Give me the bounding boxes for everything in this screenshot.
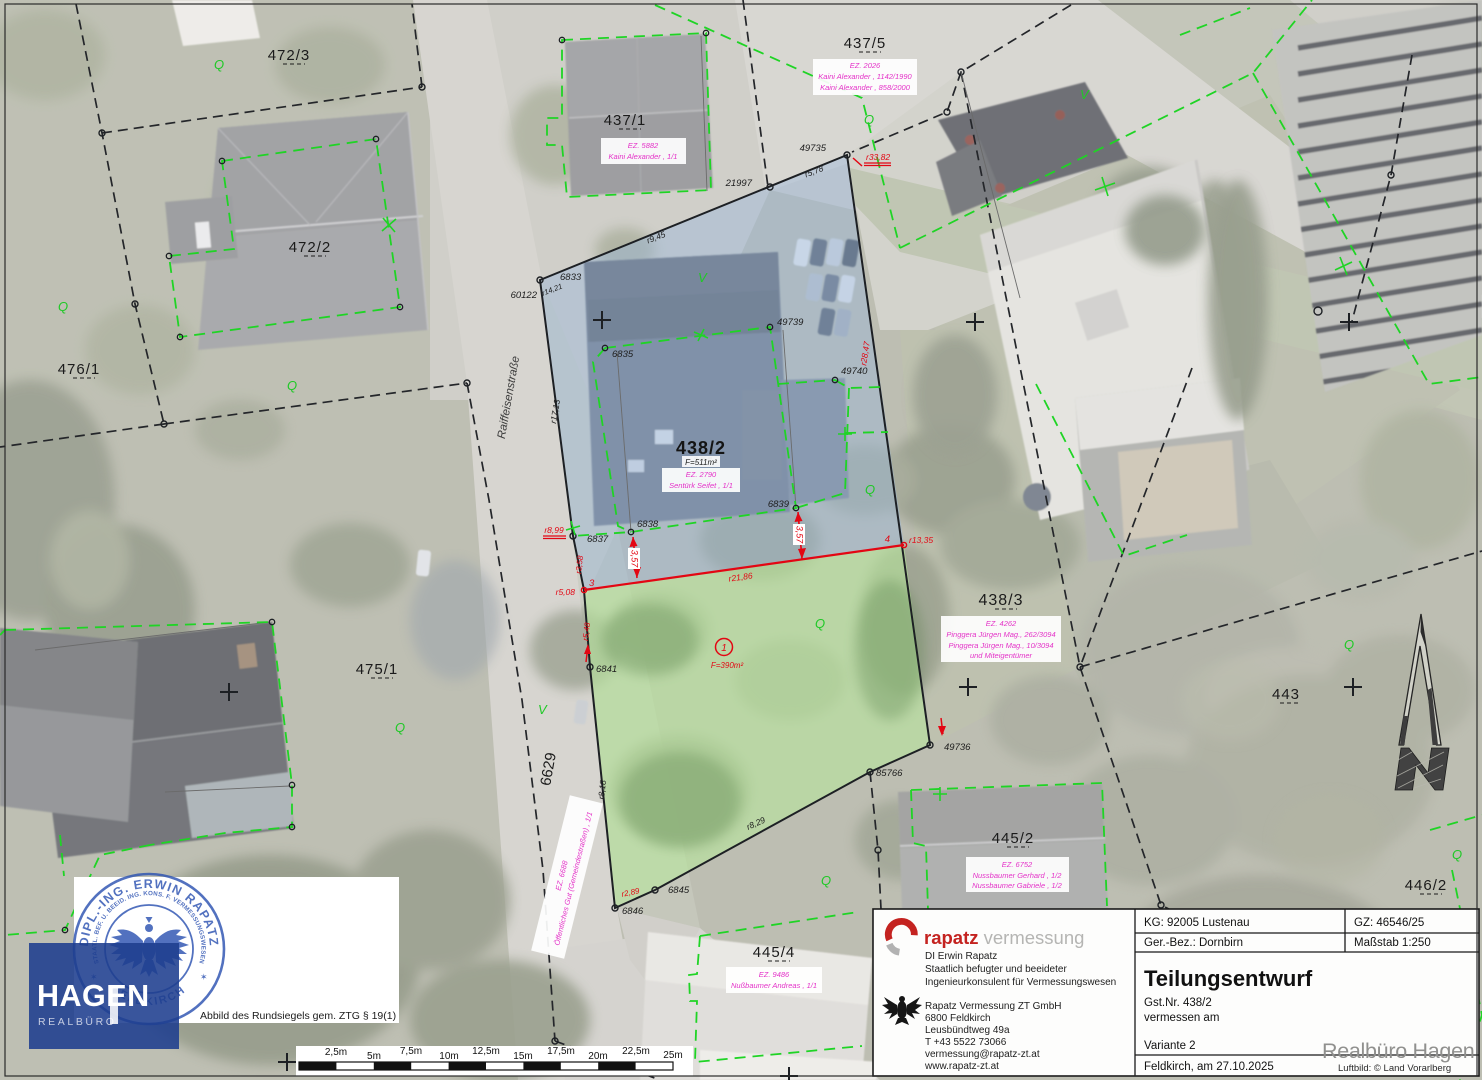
svg-text:446/2: 446/2 — [1405, 877, 1448, 894]
svg-text:KG: 92005 Lustenau: KG: 92005 Lustenau — [1144, 917, 1250, 929]
svg-text:Q: Q — [287, 378, 297, 393]
svg-text:438/2: 438/2 — [676, 438, 726, 458]
svg-text:Ingenieurkonsulent für Vermess: Ingenieurkonsulent für Vermessungswesen — [925, 977, 1116, 988]
svg-text:V: V — [1080, 87, 1090, 102]
svg-text:1: 1 — [721, 643, 727, 654]
svg-text:Abbild des Rundsiegels gem. ZT: Abbild des Rundsiegels gem. ZTG § 19(1) — [200, 1010, 396, 1022]
svg-text:rapatz vermessung: rapatz vermessung — [924, 927, 1084, 948]
svg-text:Leusbündtweg 49a: Leusbündtweg 49a — [925, 1025, 1010, 1036]
svg-text:49736: 49736 — [944, 742, 971, 753]
svg-text:EZ. 2026: EZ. 2026 — [850, 61, 881, 70]
svg-text:Teilungsentwurf: Teilungsentwurf — [1144, 966, 1313, 991]
svg-text:10m: 10m — [439, 1051, 458, 1062]
svg-text:12,5m: 12,5m — [472, 1046, 500, 1057]
svg-text:15m: 15m — [513, 1051, 532, 1062]
svg-text:Kaini Alexander , 1142/1990: Kaini Alexander , 1142/1990 — [818, 72, 912, 81]
svg-text:EZ. 6752: EZ. 6752 — [1002, 860, 1033, 869]
svg-text:Pinggera Jürgen Mag., 262/3094: Pinggera Jürgen Mag., 262/3094 — [946, 630, 1055, 639]
svg-text:476/1: 476/1 — [58, 361, 101, 378]
svg-text:V: V — [538, 702, 548, 717]
svg-text:22,5m: 22,5m — [622, 1046, 650, 1057]
svg-text:Nussbaumer Gabriele , 1/2: Nussbaumer Gabriele , 1/2 — [972, 881, 1062, 890]
svg-text:Nussbaumer Gerhard , 1/2: Nussbaumer Gerhard , 1/2 — [973, 871, 1063, 880]
svg-text:Variante 2: Variante 2 — [1144, 1040, 1196, 1052]
svg-text:Q: Q — [864, 112, 874, 127]
svg-text:6837: 6837 — [587, 534, 609, 545]
svg-text:r5,08: r5,08 — [556, 587, 576, 597]
svg-text:EZ. 9486: EZ. 9486 — [759, 970, 790, 979]
svg-text:438/3: 438/3 — [978, 592, 1023, 609]
svg-text:49735: 49735 — [800, 143, 827, 154]
svg-text:25m: 25m — [663, 1050, 682, 1061]
svg-text:Staatlich befugter und beeidet: Staatlich befugter und beeideter — [925, 964, 1067, 975]
svg-text:443: 443 — [1272, 686, 1300, 703]
svg-text:Ger.-Bez.: Dornbirn: Ger.-Bez.: Dornbirn — [1144, 937, 1243, 949]
svg-text:r8,18: r8,18 — [596, 779, 608, 800]
svg-text:60122: 60122 — [511, 290, 538, 301]
svg-text:Sentürk Seifet , 1/1: Sentürk Seifet , 1/1 — [669, 481, 733, 490]
svg-text:20m: 20m — [588, 1051, 607, 1062]
svg-text:472/3: 472/3 — [268, 47, 311, 64]
svg-text:Maßstab 1:250: Maßstab 1:250 — [1354, 937, 1431, 949]
svg-text:und Miteigentümer: und Miteigentümer — [970, 651, 1033, 660]
svg-text:49740: 49740 — [841, 366, 868, 377]
svg-text:r13,35: r13,35 — [909, 535, 933, 545]
svg-text:6800 Feldkirch: 6800 Feldkirch — [925, 1013, 991, 1024]
svg-text:17,5m: 17,5m — [547, 1046, 575, 1057]
svg-text:Pinggera Jürgen Mag., 10/3094: Pinggera Jürgen Mag., 10/3094 — [948, 641, 1053, 650]
svg-text:Q: Q — [58, 299, 68, 314]
svg-text:EZ. 5882: EZ. 5882 — [628, 141, 659, 150]
svg-text:GZ: 46546/25: GZ: 46546/25 — [1354, 917, 1424, 929]
svg-text:T +43 5522 73066: T +43 5522 73066 — [925, 1037, 1007, 1048]
svg-text:475/1: 475/1 — [356, 661, 399, 678]
svg-text:Q: Q — [865, 482, 875, 497]
svg-text:445/4: 445/4 — [753, 944, 796, 961]
svg-text:F=511m²: F=511m² — [685, 458, 717, 467]
svg-text:6833: 6833 — [560, 272, 582, 283]
svg-text:2,5m: 2,5m — [325, 1047, 347, 1058]
svg-text:www.rapatz-zt.at: www.rapatz-zt.at — [924, 1061, 999, 1072]
svg-text:445/2: 445/2 — [992, 830, 1035, 847]
svg-text:Rapatz Vermessung ZT GmbH: Rapatz Vermessung ZT GmbH — [925, 1001, 1062, 1012]
svg-text:6846: 6846 — [622, 906, 644, 917]
svg-text:4: 4 — [885, 534, 890, 545]
svg-text:vermessung@rapatz-zt.at: vermessung@rapatz-zt.at — [925, 1049, 1040, 1060]
svg-text:Luftbild: © Land Vorarlberg: Luftbild: © Land Vorarlberg — [1338, 1063, 1451, 1074]
svg-text:EZ. 2790: EZ. 2790 — [686, 470, 717, 479]
svg-text:Kaini Alexander , 858/2000: Kaini Alexander , 858/2000 — [820, 83, 911, 92]
svg-text:7,5m: 7,5m — [400, 1046, 422, 1057]
svg-text:DI Erwin Rapatz: DI Erwin Rapatz — [925, 951, 997, 962]
svg-text:Realbüro Hagen: Realbüro Hagen — [1322, 1039, 1474, 1063]
svg-text:6845: 6845 — [668, 885, 690, 896]
svg-text:REALBÜRO: REALBÜRO — [38, 1016, 117, 1028]
svg-text:Feldkirch, am 27.10.2025: Feldkirch, am 27.10.2025 — [1144, 1061, 1274, 1073]
svg-text:Q: Q — [395, 720, 405, 735]
svg-text:85766: 85766 — [876, 768, 903, 779]
svg-text:Q: Q — [214, 57, 224, 72]
svg-text:472/2: 472/2 — [289, 239, 332, 256]
svg-text:Q: Q — [1344, 637, 1354, 652]
svg-text:3,57: 3,57 — [630, 550, 640, 569]
svg-text:Kaini Alexander , 1/1: Kaini Alexander , 1/1 — [609, 152, 678, 161]
svg-text:49739: 49739 — [777, 317, 804, 328]
svg-text:21997: 21997 — [725, 178, 753, 189]
svg-text:437/1: 437/1 — [604, 112, 647, 129]
svg-text:Gst.Nr. 438/2: Gst.Nr. 438/2 — [1144, 997, 1212, 1009]
svg-text:HAGEN: HAGEN — [37, 979, 150, 1013]
svg-text:✶: ✶ — [200, 972, 208, 982]
svg-text:r33,82: r33,82 — [866, 152, 890, 162]
svg-text:F=390m²: F=390m² — [711, 661, 744, 670]
svg-text:Q: Q — [821, 873, 831, 888]
svg-text:6838: 6838 — [637, 519, 659, 530]
svg-text:vermessen am: vermessen am — [1144, 1012, 1219, 1024]
svg-text:V: V — [698, 270, 708, 285]
svg-text:3,57: 3,57 — [795, 526, 805, 545]
svg-text:6839: 6839 — [768, 499, 790, 510]
svg-text:3: 3 — [589, 578, 595, 589]
svg-text:EZ. 4262: EZ. 4262 — [986, 619, 1017, 628]
svg-text:Q: Q — [815, 616, 825, 631]
svg-text:r8,99: r8,99 — [544, 525, 564, 535]
svg-text:Nußbaumer Andreas , 1/1: Nußbaumer Andreas , 1/1 — [731, 981, 817, 990]
svg-text:5m: 5m — [367, 1051, 381, 1062]
svg-text:6841: 6841 — [596, 664, 617, 675]
svg-text:Q: Q — [1452, 847, 1462, 862]
svg-text:437/5: 437/5 — [844, 35, 887, 52]
svg-text:6835: 6835 — [612, 349, 634, 360]
